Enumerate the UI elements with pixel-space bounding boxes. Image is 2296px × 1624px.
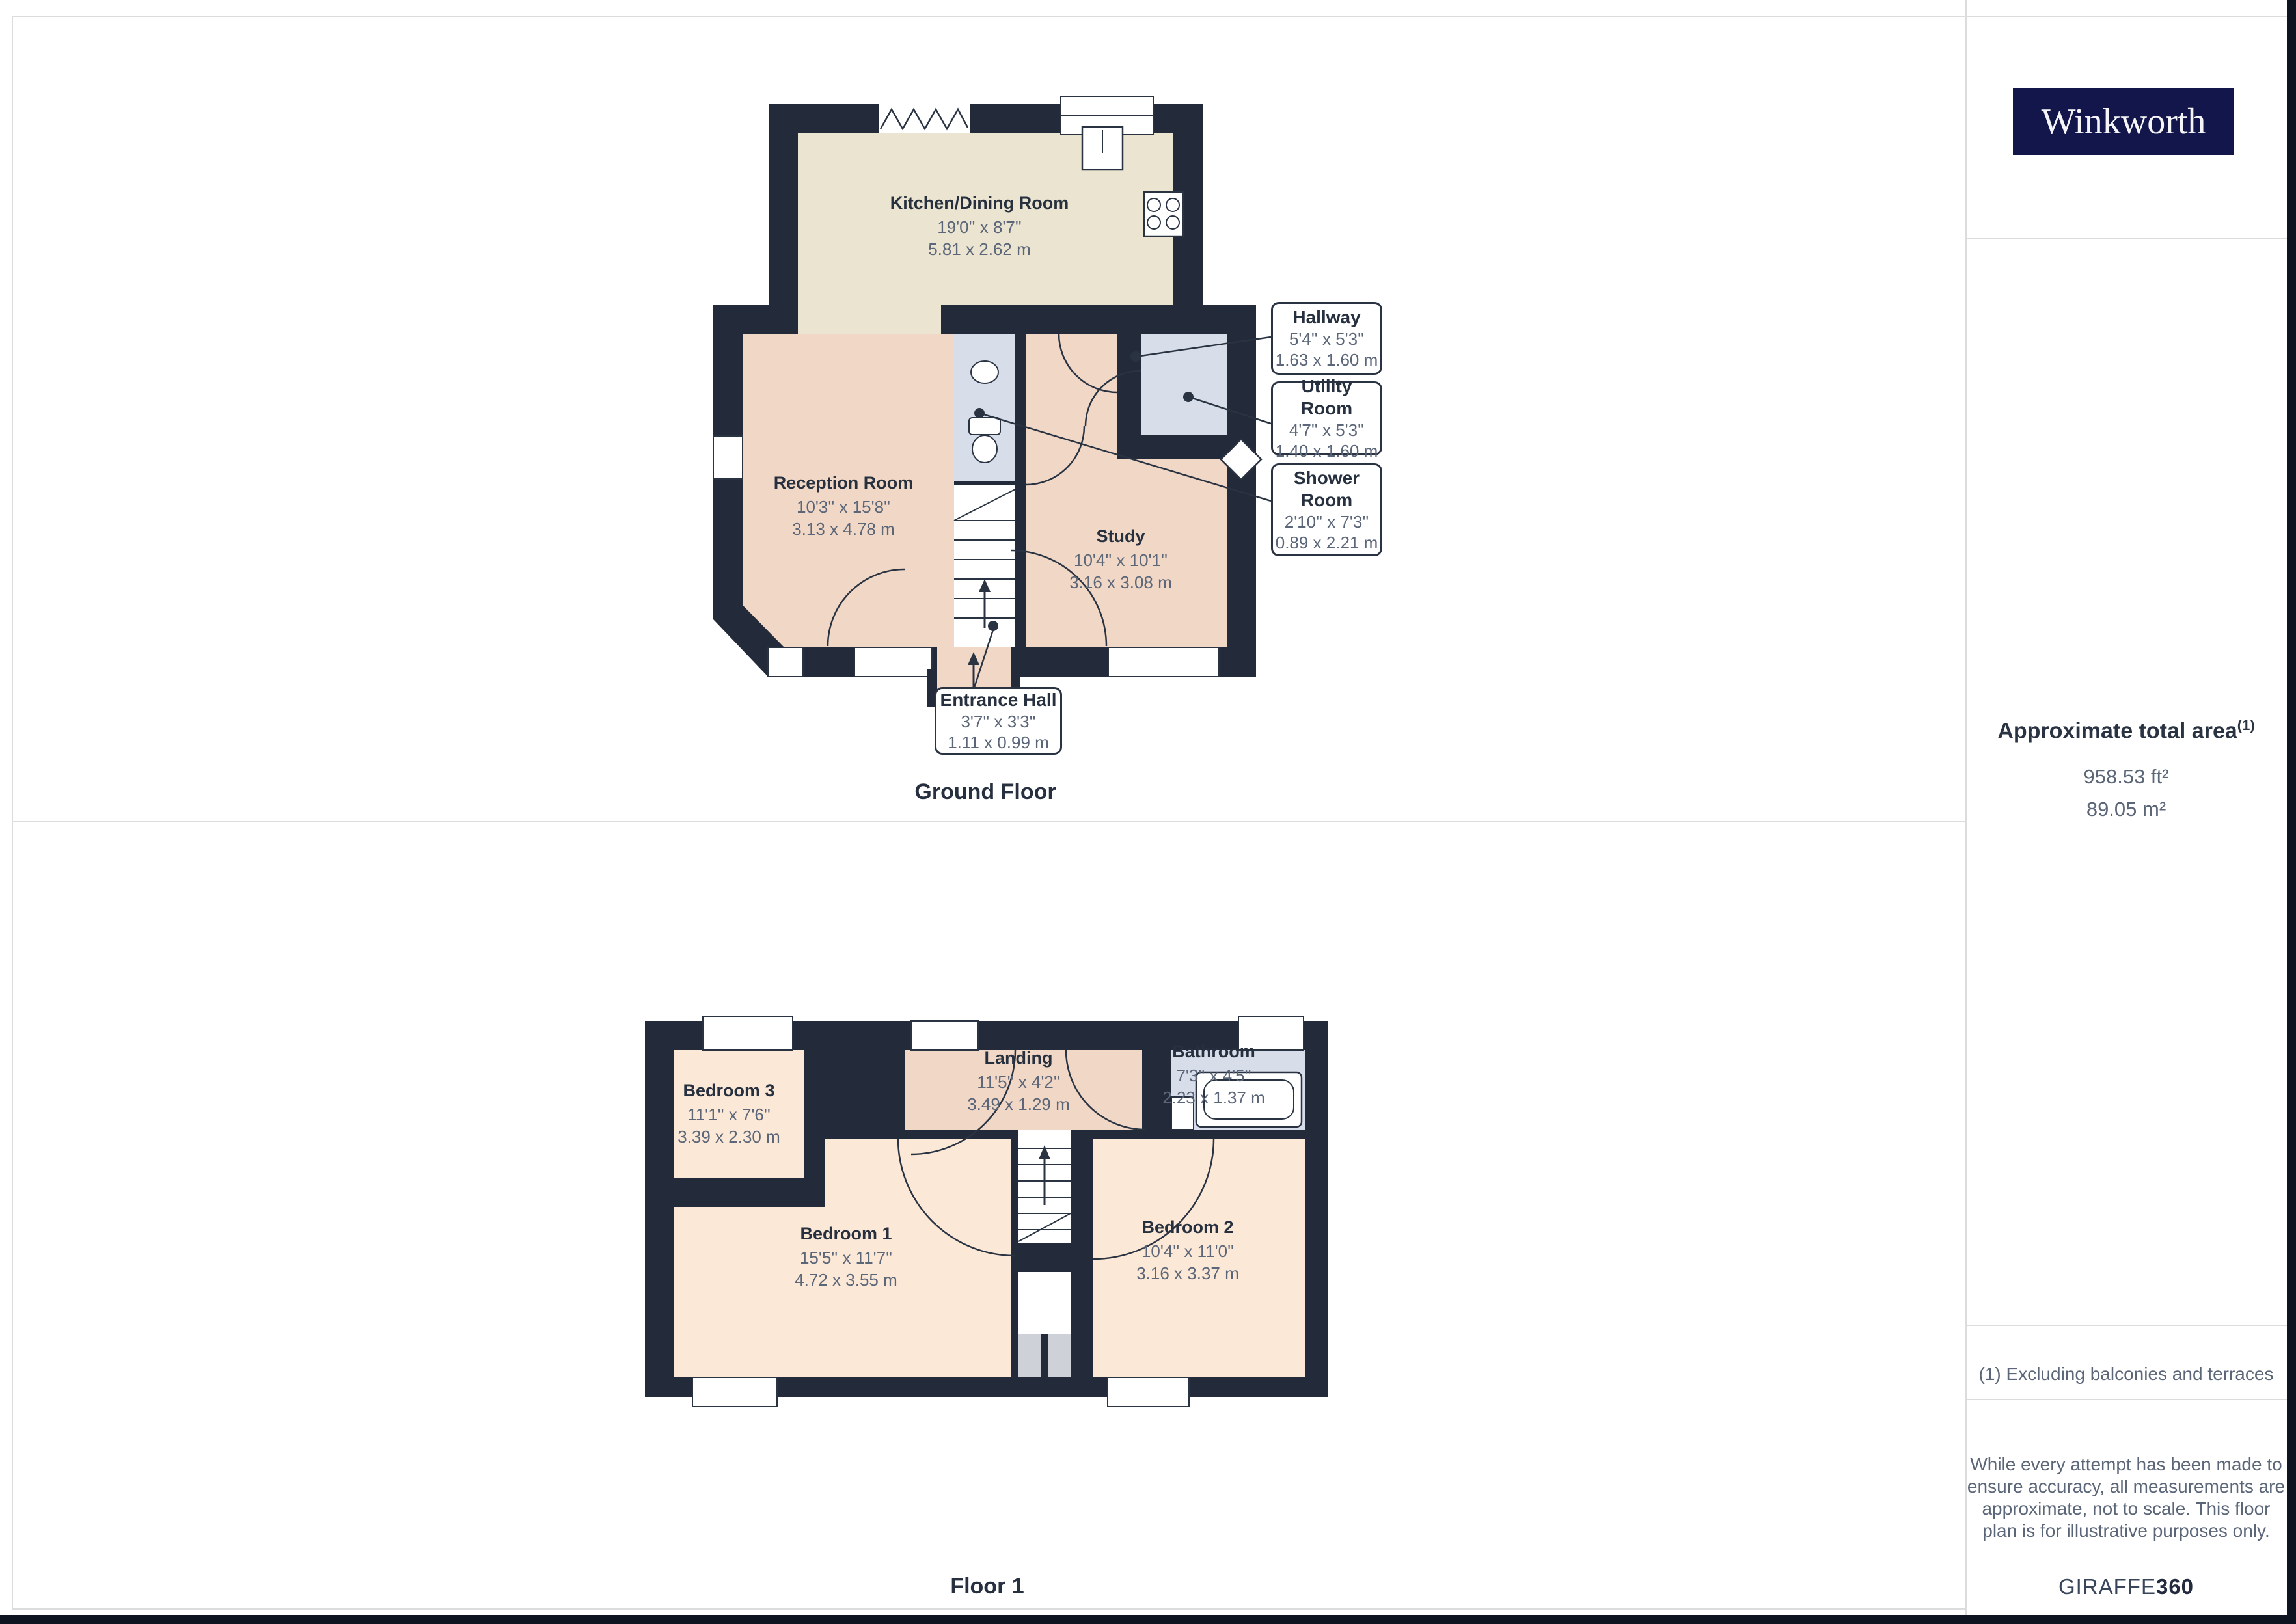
total-area-m: 89.05 m² — [2086, 798, 2166, 821]
window — [703, 1016, 793, 1050]
winkworth-logo: Winkworth — [2013, 88, 2234, 155]
stairwell-void — [1018, 1272, 1071, 1334]
room-label-bedroom3: Bedroom 3 11'1'' x 7'6'' 3.39 x 2.30 m — [677, 1077, 780, 1148]
room-dim-imperial: 10'3'' x 15'8'' — [774, 496, 914, 518]
giraffe360-logo-bold: 360 — [2156, 1575, 2194, 1599]
callout-dim-imperial: 2'10'' x 7'3'' — [1285, 511, 1369, 532]
toilet-icon — [969, 418, 1000, 435]
room-dim-metric: 4.72 x 3.55 m — [795, 1269, 897, 1291]
sidebar-divider-footnote-top — [1965, 1325, 2287, 1326]
callout-hallway: Hallway 5'4'' x 5'3'' 1.63 x 1.60 m — [1271, 302, 1382, 375]
callout-utility-room: Utility Room 4'7'' x 5'3'' 1.40 x 1.60 m — [1271, 381, 1382, 455]
room-name: Bedroom 2 — [1136, 1214, 1239, 1240]
inner-wall — [1015, 334, 1026, 647]
room-name: Bedroom 3 — [677, 1077, 780, 1103]
room-dim-metric: 3.16 x 3.37 m — [1136, 1262, 1239, 1284]
callout-entrance-hall: Entrance Hall 3'7'' x 3'3'' 1.11 x 0.99 … — [935, 687, 1062, 755]
room-name: Study — [1069, 523, 1172, 549]
room-dim-metric: 3.16 x 3.08 m — [1069, 571, 1172, 593]
disclaimer-text: While every attempt has been made to ens… — [1963, 1454, 2289, 1542]
utility-wall-bottom — [1117, 435, 1227, 459]
room-dim-imperial: 10'4'' x 10'1'' — [1069, 549, 1172, 571]
left-border — [12, 16, 13, 1609]
room-name: Reception Room — [774, 470, 914, 496]
window — [713, 436, 743, 479]
winkworth-logo-text: Winkworth — [2042, 101, 2206, 142]
room-label-landing: Landing 11'5'' x 4'2'' 3.49 x 1.29 m — [967, 1045, 1070, 1115]
leader-dot — [1130, 351, 1141, 362]
toilet-bowl — [972, 435, 997, 463]
disclaimer-line: plan is for illustrative purposes only. — [1963, 1520, 2289, 1542]
bottom-edge-strip — [0, 1615, 2296, 1624]
leader-dot — [974, 408, 985, 418]
room-label-kitchen: Kitchen/Dining Room 19'0'' x 8'7'' 5.81 … — [890, 190, 1069, 260]
room-dim-imperial: 11'5'' x 4'2'' — [967, 1071, 1070, 1093]
room-name: Bathroom — [1162, 1038, 1265, 1064]
room-name: Kitchen/Dining Room — [890, 190, 1069, 216]
callout-name: Shower Room — [1276, 467, 1378, 511]
hob-icon — [1144, 192, 1183, 236]
right-edge-strip — [2287, 0, 2296, 1624]
kitchen-opening — [798, 301, 941, 335]
callout-dim-imperial: 5'4'' x 5'3'' — [1289, 329, 1364, 349]
window — [1108, 1377, 1189, 1407]
room-dim-metric: 3.49 x 1.29 m — [967, 1093, 1070, 1115]
top-border — [12, 16, 2287, 17]
callout-shower-room: Shower Room 2'10'' x 7'3'' 0.89 x 2.21 m — [1271, 463, 1382, 556]
callout-name: Utility Room — [1276, 375, 1378, 420]
area-footnote: (1) Excluding balconies and terraces — [1979, 1364, 2274, 1385]
sidebar-divider-logo — [1965, 238, 2287, 239]
callout-dim-metric: 1.40 x 1.60 m — [1276, 440, 1378, 461]
callout-dim-metric: 1.63 x 1.60 m — [1276, 349, 1378, 370]
chimney — [1018, 1334, 1041, 1377]
room-dim-imperial: 10'4'' x 11'0'' — [1136, 1240, 1239, 1262]
leader-dot — [988, 621, 998, 631]
callout-name: Entrance Hall — [940, 689, 1057, 711]
room-name: Landing — [967, 1045, 1070, 1071]
callout-name: Hallway — [1292, 306, 1360, 329]
disclaimer-line: approximate, not to scale. This floor — [1963, 1498, 2289, 1520]
floorplan-page: Kitchen/Dining Room 19'0'' x 8'7'' 5.81 … — [0, 0, 2296, 1624]
room-dim-imperial: 15'5'' x 11'7'' — [795, 1247, 897, 1269]
callout-dim-imperial: 4'7'' x 5'3'' — [1289, 420, 1364, 440]
bottom-cell-border — [12, 1608, 1965, 1610]
callout-dim-imperial: 3'7'' x 3'3'' — [961, 711, 1035, 732]
giraffe360-logo: GIRAFFE360 — [2058, 1575, 2194, 1599]
utility-wall-left — [1117, 334, 1141, 435]
window — [854, 647, 932, 677]
window — [692, 1377, 777, 1407]
room-dim-metric: 5.81 x 2.62 m — [890, 238, 1069, 260]
room-dim-metric: 3.13 x 4.78 m — [774, 518, 914, 540]
floor1-title: Floor 1 — [950, 1574, 1024, 1599]
ground-floor-title: Ground Floor — [914, 779, 1056, 805]
room-label-study: Study 10'4'' x 10'1'' 3.16 x 3.08 m — [1069, 523, 1172, 593]
giraffe360-logo-text: GIRAFFE — [2058, 1575, 2156, 1599]
room-name: Bedroom 1 — [795, 1221, 897, 1247]
room-label-reception: Reception Room 10'3'' x 15'8'' 3.13 x 4.… — [774, 470, 914, 540]
room-dim-metric: 2.23 x 1.37 m — [1162, 1087, 1265, 1109]
room-dim-metric: 3.39 x 2.30 m — [677, 1126, 780, 1148]
room-label-bedroom2: Bedroom 2 10'4'' x 11'0'' 3.16 x 3.37 m — [1136, 1214, 1239, 1284]
window — [768, 647, 803, 677]
total-area-superscript: (1) — [2237, 717, 2255, 733]
room-dim-imperial: 19'0'' x 8'7'' — [890, 216, 1069, 238]
basin-icon — [971, 361, 998, 383]
disclaimer-line: While every attempt has been made to — [1963, 1454, 2289, 1476]
room-label-bedroom1: Bedroom 1 15'5'' x 11'7'' 4.72 x 3.55 m — [795, 1221, 897, 1291]
window — [1108, 647, 1219, 677]
leader-dot — [1183, 392, 1194, 402]
sidebar-divider — [1965, 0, 1967, 1615]
room-label-bathroom: Bathroom 7'3'' x 4'5'' 2.23 x 1.37 m — [1162, 1038, 1265, 1109]
callout-dim-metric: 1.11 x 0.99 m — [948, 732, 1049, 753]
chimney — [1048, 1334, 1071, 1377]
disclaimer-line: ensure accuracy, all measurements are — [1963, 1476, 2289, 1498]
total-area-ft: 958.53 ft² — [2084, 765, 2169, 789]
room-dim-imperial: 7'3'' x 4'5'' — [1162, 1064, 1265, 1087]
total-area-title: Approximate total area(1) — [1997, 717, 2254, 744]
sidebar-divider-footnote-bottom — [1965, 1399, 2287, 1400]
floors-divider — [12, 821, 1965, 822]
total-area-title-text: Approximate total area — [1997, 718, 2237, 743]
room-dim-imperial: 11'1'' x 7'6'' — [677, 1103, 780, 1126]
callout-dim-metric: 0.89 x 2.21 m — [1276, 532, 1378, 553]
